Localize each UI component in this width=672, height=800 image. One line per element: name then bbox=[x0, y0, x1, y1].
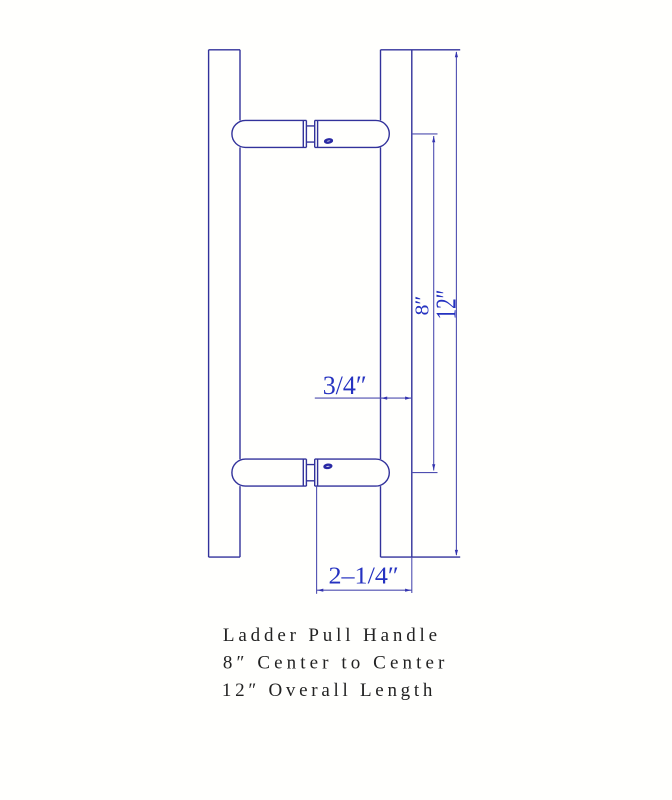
svg-text:8″ Center to Center: 8″ Center to Center bbox=[223, 652, 445, 673]
svg-text:12″: 12″ bbox=[431, 290, 462, 320]
svg-text:2–1/4″: 2–1/4″ bbox=[329, 563, 399, 589]
svg-text:8″: 8″ bbox=[412, 296, 434, 316]
svg-text:12″ Overall Length: 12″ Overall Length bbox=[222, 680, 433, 701]
svg-text:Ladder Pull Handle: Ladder Pull Handle bbox=[223, 625, 437, 646]
svg-text:3/4″: 3/4″ bbox=[323, 370, 367, 400]
